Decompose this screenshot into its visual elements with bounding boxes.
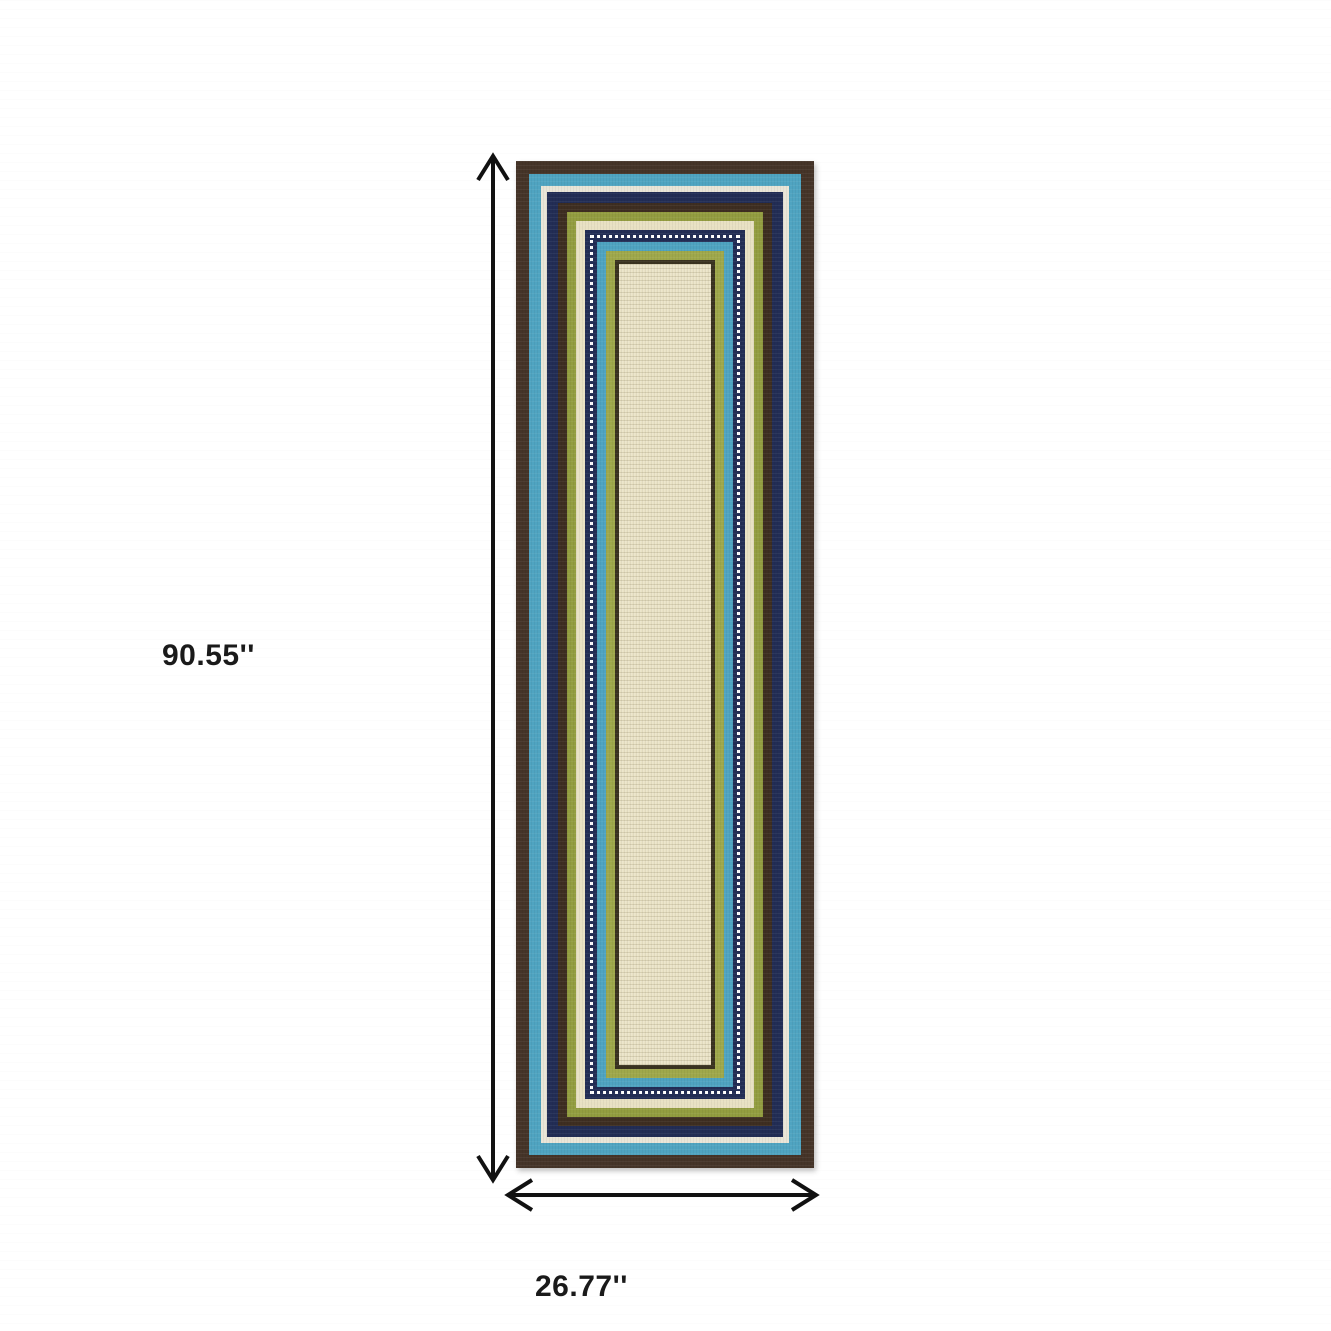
border-dark-olive-thin — [615, 260, 715, 1069]
border-brown-outer — [516, 161, 814, 1168]
height-dimension-label: 90.55'' — [162, 641, 255, 671]
product-dimension-diagram: 90.55'' 26.77'' — [0, 0, 1331, 1331]
border-navy-dotted — [585, 230, 745, 1099]
width-dimension-arrow — [500, 1175, 824, 1215]
rug-field — [619, 264, 711, 1065]
rug-image — [516, 161, 814, 1168]
border-lime-green — [606, 251, 724, 1078]
border-teal-outer — [529, 174, 801, 1155]
width-dimension-label: 26.77'' — [535, 1272, 628, 1302]
border-ivory-thin — [541, 186, 789, 1143]
height-dimension-arrow — [473, 148, 513, 1188]
border-navy-outer — [547, 192, 783, 1137]
border-teal-inner — [597, 242, 733, 1087]
border-cream — [576, 221, 754, 1108]
border-olive-green — [567, 212, 763, 1117]
border-brown-middle — [558, 203, 772, 1126]
dotted-accent-line — [590, 235, 740, 1094]
